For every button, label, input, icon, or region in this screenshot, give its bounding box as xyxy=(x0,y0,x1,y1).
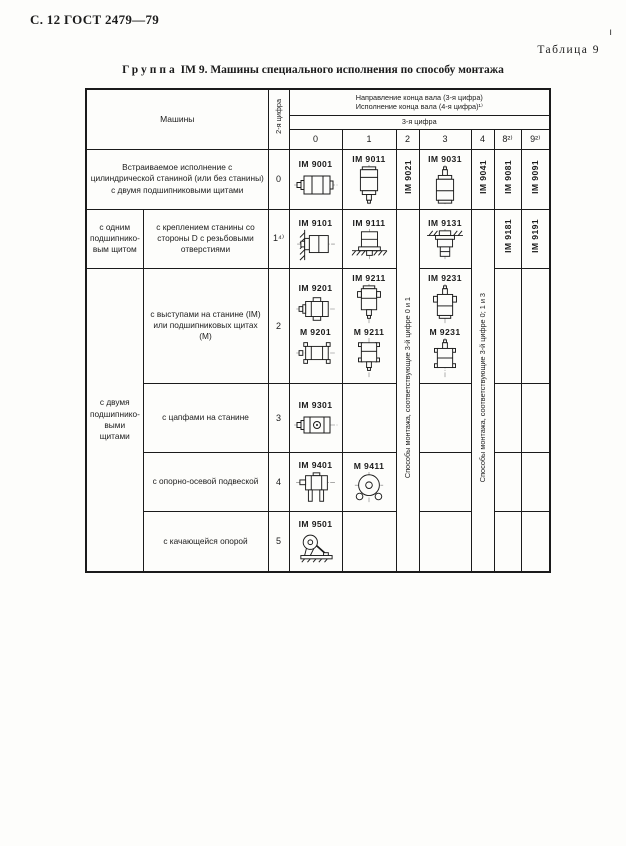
motor-rocking-support-icon xyxy=(293,529,339,565)
cell-im9191: IM 9191 xyxy=(521,209,550,268)
col-header-0-label: 0 xyxy=(290,134,342,144)
motor-ceiling-mounted-icon xyxy=(422,228,468,262)
motor-shield-lugs-shaft-up-icon xyxy=(429,337,461,379)
col-header-2-label: 2 xyxy=(397,134,419,144)
row4-description-text: с опорно-осевой подвеской xyxy=(144,474,268,489)
mounting-types-table: Машины 2-я цифра Направление конца вала … xyxy=(85,88,551,573)
col-header-9-label: 9²⁾ xyxy=(522,134,550,145)
header-third-digit-label: 3-я цифра xyxy=(290,117,550,126)
cell-im9021: IM 9021 xyxy=(396,149,419,209)
motor-shield-lugs-vertical-icon xyxy=(353,337,385,379)
header-second-digit: 2-я цифра xyxy=(268,89,289,149)
motor-floor-mounted-icon xyxy=(346,228,392,262)
col-header-8-label: 8²⁾ xyxy=(495,134,521,145)
cell-im9201-m9201: IM 9201 М 9201 xyxy=(289,268,342,383)
motor-trunnions-icon xyxy=(293,410,339,440)
empty-cell-row5-col1 xyxy=(342,511,396,572)
row3-digit-label: 3 xyxy=(269,413,289,423)
header-third-digit: 3-я цифра xyxy=(289,115,550,129)
empty-cell-row5-col8 xyxy=(494,511,521,572)
code-label-im9181: IM 9181 xyxy=(503,219,513,253)
cell-im9091: IM 9091 xyxy=(521,149,550,209)
row1-description: с креплением станины со стороны D с резь… xyxy=(143,209,268,268)
code-label-im9201: IM 9201 xyxy=(299,283,333,293)
motor-frame-lugs-shaft-up-icon xyxy=(429,283,461,325)
motor-frame-lugs-vertical-icon xyxy=(353,283,385,325)
cell-im9501: IM 9501 xyxy=(289,511,342,572)
code-label-m9231: М 9231 xyxy=(429,327,460,337)
motor-frame-lugs-horizontal-icon xyxy=(293,293,339,325)
cell-im9001: IM 9001 xyxy=(289,149,342,209)
col-header-4-label: 4 xyxy=(472,134,494,144)
row2-description-text: с выступами на станине (IM) или подшипни… xyxy=(144,307,268,345)
cell-im9111: IM 9111 xyxy=(342,209,396,268)
header-machines: Машины xyxy=(86,89,268,149)
code-label-im9001: IM 9001 xyxy=(299,159,333,169)
empty-cell-row2-col9 xyxy=(521,268,550,383)
col-header-0: 0 xyxy=(289,129,342,149)
cell-im9401: IM 9401 xyxy=(289,452,342,511)
code-label-im9501: IM 9501 xyxy=(299,519,333,529)
code-label-im9081: IM 9081 xyxy=(503,160,513,194)
shaft-direction-line1: Направление конца вала (3-я цифра) xyxy=(290,93,550,102)
row2-digit: 2 xyxy=(268,268,289,383)
cell-im9031: IM 9031 xyxy=(419,149,471,209)
header-shaft-direction: Направление конца вала (3-я цифра) Испол… xyxy=(289,89,550,115)
code-label-m9411: М 9411 xyxy=(354,461,385,471)
cell-im9041: IM 9041 xyxy=(471,149,494,209)
row2-digit-label: 2 xyxy=(269,321,289,331)
col-header-9: 9²⁾ xyxy=(521,129,550,149)
cell-im9011: IM 9011 xyxy=(342,149,396,209)
motor-wall-mounted-icon xyxy=(293,228,339,262)
span-col2-text: Способы монтажа, соответствующие 3-й циф… xyxy=(403,297,412,478)
row1-digit-label: 1⁴⁾ xyxy=(269,233,289,244)
cell-im9301: IM 9301 xyxy=(289,383,342,452)
shaft-direction-line2: Исполнение конца вала (4-я цифра)¹⁾ xyxy=(290,102,550,111)
scan-artifact-mark: ı xyxy=(609,27,612,38)
motor-vertical-shaft-down-icon xyxy=(354,164,384,206)
span-col4-note: Способы монтажа, соответствующие 3-й циф… xyxy=(471,209,494,572)
cell-im9081: IM 9081 xyxy=(494,149,521,209)
table-number-label: Таблица 9 xyxy=(537,44,600,56)
span-col4-text: Способы монтажа, соответствующие 3-й циф… xyxy=(478,293,487,482)
header-machines-label: Машины xyxy=(87,114,268,124)
row1-digit: 1⁴⁾ xyxy=(268,209,289,268)
cell-im9181: IM 9181 xyxy=(494,209,521,268)
empty-cell-row4-col8 xyxy=(494,452,521,511)
table-title-rest: IM 9. Машины специального исполнения по … xyxy=(181,64,504,76)
page-header: С. 12 ГОСТ 2479—79 xyxy=(30,12,159,28)
row1-group-text: с одним подшипнико- вым щитом xyxy=(87,220,143,258)
row5-description-text: с качающейся опорой xyxy=(144,534,268,549)
row4-digit-label: 4 xyxy=(269,477,289,487)
empty-cell-row4-col9 xyxy=(521,452,550,511)
code-label-im9021: IM 9021 xyxy=(403,160,413,194)
code-label-im9101: IM 9101 xyxy=(299,218,333,228)
row3-digit: 3 xyxy=(268,383,289,452)
row0-description-text: Встраиваемое исполнение с цилиндрической… xyxy=(87,160,268,198)
table-title: Группа IM 9. Машины специального исполне… xyxy=(0,64,626,76)
cell-im9101: IM 9101 xyxy=(289,209,342,268)
empty-cell-row3-col3 xyxy=(419,383,471,452)
code-label-im9111: IM 9111 xyxy=(353,218,386,228)
row0-digit-label: 0 xyxy=(269,174,289,184)
empty-cell-row4-col3 xyxy=(419,452,471,511)
code-label-im9131: IM 9131 xyxy=(428,218,462,228)
motor-axle-suspension-icon xyxy=(293,470,339,506)
row0-description: Встраиваемое исполнение с цилиндрической… xyxy=(86,149,268,209)
row2-group-text: с двумя подшипнико- выми щитами xyxy=(87,395,143,444)
motor-vertical-shaft-up-icon xyxy=(430,164,460,206)
code-label-im9401: IM 9401 xyxy=(299,460,333,470)
empty-cell-row5-col9 xyxy=(521,511,550,572)
empty-cell-row5-col3 xyxy=(419,511,471,572)
row4-description: с опорно-осевой подвеской xyxy=(143,452,268,511)
row2-group: с двумя подшипнико- выми щитами xyxy=(86,268,143,572)
col-header-1: 1 xyxy=(342,129,396,149)
col-header-4: 4 xyxy=(471,129,494,149)
cell-m9411: М 9411 xyxy=(342,452,396,511)
code-label-m9201: М 9201 xyxy=(300,327,331,337)
row5-description: с качающейся опорой xyxy=(143,511,268,572)
row2-description: с выступами на станине (IM) или подшипни… xyxy=(143,268,268,383)
code-label-im9031: IM 9031 xyxy=(428,154,462,164)
code-label-im9011: IM 9011 xyxy=(352,154,385,164)
empty-cell-row3-col8 xyxy=(494,383,521,452)
empty-cell-row2-col8 xyxy=(494,268,521,383)
row0-digit: 0 xyxy=(268,149,289,209)
cell-im9211-m9211: IM 9211 М 9211 xyxy=(342,268,396,383)
empty-cell-row3-col9 xyxy=(521,383,550,452)
col-header-8: 8²⁾ xyxy=(494,129,521,149)
code-label-im9091: IM 9091 xyxy=(530,160,540,194)
col-header-3-label: 3 xyxy=(420,134,471,144)
row3-description: с цапфами на станине xyxy=(143,383,268,452)
motor-horizontal-icon xyxy=(293,169,339,201)
document-page: С. 12 ГОСТ 2479—79 ı Таблица 9 Группа IM… xyxy=(0,0,626,846)
code-label-m9211: М 9211 xyxy=(354,327,385,337)
empty-cell-row3-col1 xyxy=(342,383,396,452)
code-label-im9301: IM 9301 xyxy=(299,400,333,410)
cell-im9131: IM 9131 xyxy=(419,209,471,268)
motor-shield-lugs-horizontal-icon xyxy=(293,337,339,369)
row1-group: с одним подшипнико- вым щитом xyxy=(86,209,143,268)
motor-axle-suspension-front-icon xyxy=(346,471,392,505)
table-title-group-word: Группа xyxy=(122,64,178,76)
row5-digit: 5 xyxy=(268,511,289,572)
code-label-im9211: IM 9211 xyxy=(352,273,385,283)
row3-description-text: с цапфами на станине xyxy=(144,410,268,425)
span-col2-note: Способы монтажа, соответствующие 3-й циф… xyxy=(396,209,419,572)
code-label-im9231: IM 9231 xyxy=(428,273,462,283)
cell-im9231-m9231: IM 9231 М 9231 xyxy=(419,268,471,383)
header-second-digit-label: 2-я цифра xyxy=(274,99,283,134)
col-header-2: 2 xyxy=(396,129,419,149)
col-header-3: 3 xyxy=(419,129,471,149)
col-header-1-label: 1 xyxy=(343,134,396,144)
row5-digit-label: 5 xyxy=(269,536,289,546)
code-label-im9191: IM 9191 xyxy=(530,219,540,253)
code-label-im9041: IM 9041 xyxy=(478,160,488,194)
row4-digit: 4 xyxy=(268,452,289,511)
row1-description-text: с креплением станины со стороны D с резь… xyxy=(144,220,268,258)
